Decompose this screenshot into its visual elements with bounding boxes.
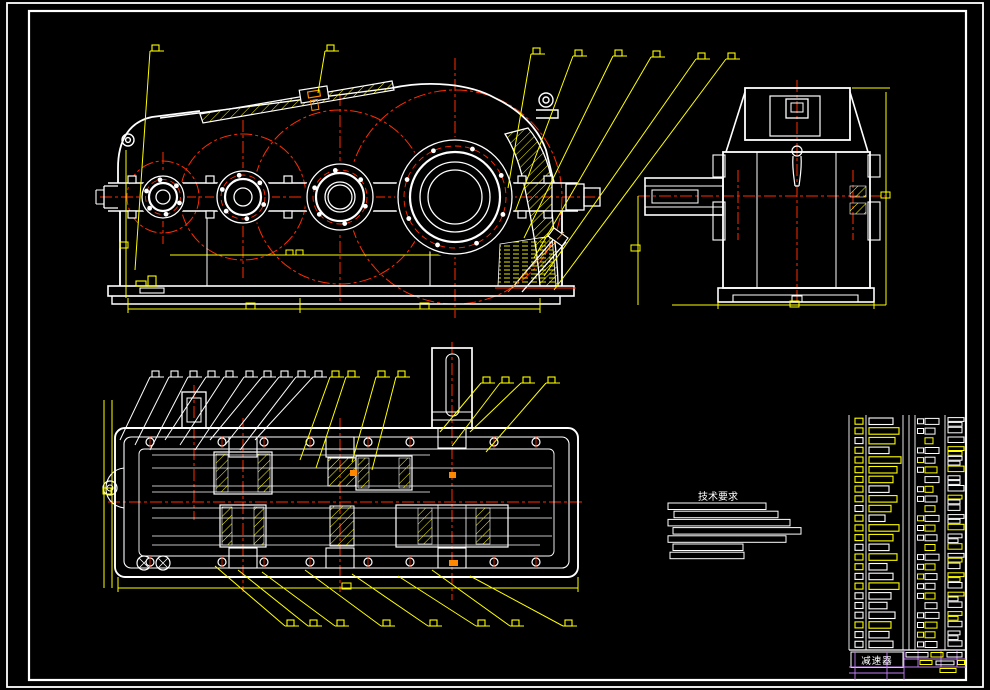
bolt-icon [499, 173, 504, 178]
bolt-icon [164, 212, 169, 217]
cad-viewport: 技术要求 减速器 [0, 0, 990, 690]
bolt-icon [244, 216, 249, 221]
bolt-icon [312, 185, 317, 190]
stud-icon [518, 176, 526, 183]
bolt-icon [363, 204, 368, 209]
stud-icon [544, 176, 552, 183]
stud-icon [284, 176, 292, 183]
bolt-icon [261, 202, 266, 207]
bolt-icon [405, 177, 410, 182]
bolt-icon [431, 148, 436, 153]
bolt-icon [470, 147, 475, 152]
bolt-icon [237, 173, 242, 178]
stud-icon [284, 211, 292, 218]
tech-requirements-heading: 技术要求 [698, 490, 738, 503]
bolt-icon [342, 221, 347, 226]
drawing-canvas[interactable]: 技术要求 减速器 [0, 0, 990, 690]
stud-icon [206, 211, 214, 218]
stud-icon [128, 176, 136, 183]
bolt-icon [177, 201, 182, 206]
stud-icon [128, 211, 136, 218]
stud-icon [518, 211, 526, 218]
bolt-icon [220, 187, 225, 192]
bolt-icon [158, 177, 163, 182]
drawing-title: 减速器 [861, 655, 893, 667]
bolt-icon [435, 243, 440, 248]
bolt-icon [147, 206, 152, 211]
bolt-icon [333, 168, 338, 173]
bolt-icon [474, 241, 479, 246]
stud-icon [544, 211, 552, 218]
stud-icon [206, 176, 214, 183]
bolt-icon [501, 212, 506, 217]
bolt-icon [144, 189, 149, 194]
bolt-icon [257, 180, 262, 185]
bolt-icon [358, 177, 363, 182]
bolt-icon [406, 216, 411, 221]
bolt-icon [224, 209, 229, 214]
bolt-icon [317, 212, 322, 217]
bolt-icon [174, 183, 179, 188]
drawing-background [0, 0, 990, 690]
